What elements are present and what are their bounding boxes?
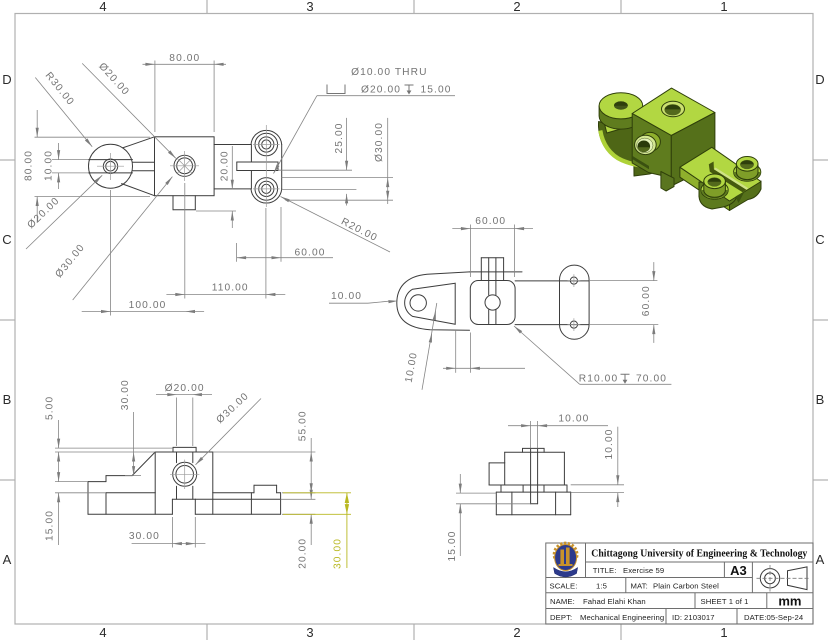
svg-text:B: B bbox=[816, 392, 825, 407]
svg-text:Ø30.00: Ø30.00 bbox=[374, 122, 385, 162]
svg-text:2103017: 2103017 bbox=[684, 613, 715, 622]
svg-text:B: B bbox=[3, 392, 12, 407]
svg-text:55.00: 55.00 bbox=[297, 410, 308, 441]
svg-text:20.00: 20.00 bbox=[297, 538, 308, 569]
svg-text:3: 3 bbox=[306, 625, 313, 640]
svg-text:30.00: 30.00 bbox=[120, 379, 131, 410]
svg-text:3: 3 bbox=[306, 0, 313, 14]
svg-text:15.00: 15.00 bbox=[421, 84, 452, 95]
svg-text:1: 1 bbox=[720, 625, 727, 640]
svg-text:Chittagong University of Engin: Chittagong University of Engineering & T… bbox=[591, 548, 807, 560]
svg-text:R10.00: R10.00 bbox=[579, 374, 618, 385]
svg-text:20.00: 20.00 bbox=[220, 150, 231, 181]
svg-text:15.00: 15.00 bbox=[45, 510, 56, 541]
svg-text:10.00: 10.00 bbox=[331, 291, 362, 302]
svg-text:D: D bbox=[2, 72, 11, 87]
svg-text:MAT:: MAT: bbox=[631, 581, 648, 590]
svg-text:25.00: 25.00 bbox=[334, 123, 345, 154]
svg-text:DATE:: DATE: bbox=[744, 613, 767, 622]
svg-text:80.00: 80.00 bbox=[169, 53, 200, 64]
svg-text:60.00: 60.00 bbox=[475, 216, 506, 227]
svg-text:SHEET 1 of 1: SHEET 1 of 1 bbox=[701, 597, 749, 606]
svg-text:5.00: 5.00 bbox=[45, 396, 56, 420]
svg-text:2: 2 bbox=[513, 625, 520, 640]
svg-text:Ø20.00: Ø20.00 bbox=[361, 84, 401, 95]
svg-text:A: A bbox=[3, 552, 12, 567]
svg-text:TITLE:: TITLE: bbox=[593, 566, 617, 575]
svg-text:30.00: 30.00 bbox=[333, 538, 344, 569]
svg-text:1:5: 1:5 bbox=[596, 581, 607, 590]
svg-text:Mechanical Engineering: Mechanical Engineering bbox=[580, 613, 664, 622]
svg-text:60.00: 60.00 bbox=[295, 247, 326, 258]
svg-text:Ø20.00: Ø20.00 bbox=[165, 383, 205, 394]
svg-text:ID:: ID: bbox=[672, 613, 682, 622]
svg-text:Exercise 59: Exercise 59 bbox=[623, 566, 664, 575]
svg-text:A3: A3 bbox=[730, 563, 747, 578]
svg-text:NAME:: NAME: bbox=[550, 597, 575, 606]
svg-text:05-Sep-24: 05-Sep-24 bbox=[767, 613, 804, 622]
svg-text:D: D bbox=[815, 72, 824, 87]
svg-text:10.00: 10.00 bbox=[44, 150, 55, 181]
svg-text:C: C bbox=[2, 232, 11, 247]
svg-text:A: A bbox=[816, 552, 825, 567]
svg-text:Ø10.00 THRU: Ø10.00 THRU bbox=[351, 67, 427, 78]
svg-text:2: 2 bbox=[513, 0, 520, 14]
svg-text:10.00: 10.00 bbox=[558, 413, 589, 424]
svg-text:30.00: 30.00 bbox=[129, 531, 160, 542]
svg-text:100.00: 100.00 bbox=[129, 300, 167, 311]
svg-text:70.00: 70.00 bbox=[636, 374, 667, 385]
svg-text:Fahad Elahi Khan: Fahad Elahi Khan bbox=[583, 597, 646, 606]
svg-text:80.00: 80.00 bbox=[24, 150, 35, 181]
svg-text:DEPT:: DEPT: bbox=[550, 613, 572, 622]
svg-text:4: 4 bbox=[99, 625, 106, 640]
svg-text:mm: mm bbox=[778, 594, 801, 609]
svg-text:60.00: 60.00 bbox=[641, 285, 652, 316]
svg-text:4: 4 bbox=[99, 0, 106, 14]
svg-text:Plain Carbon Steel: Plain Carbon Steel bbox=[653, 581, 719, 590]
svg-text:110.00: 110.00 bbox=[212, 283, 249, 294]
svg-text:1: 1 bbox=[720, 0, 727, 14]
svg-text:SCALE:: SCALE: bbox=[550, 581, 578, 590]
svg-text:C: C bbox=[815, 232, 824, 247]
svg-text:15.00: 15.00 bbox=[447, 531, 458, 562]
svg-text:10.00: 10.00 bbox=[604, 429, 615, 460]
